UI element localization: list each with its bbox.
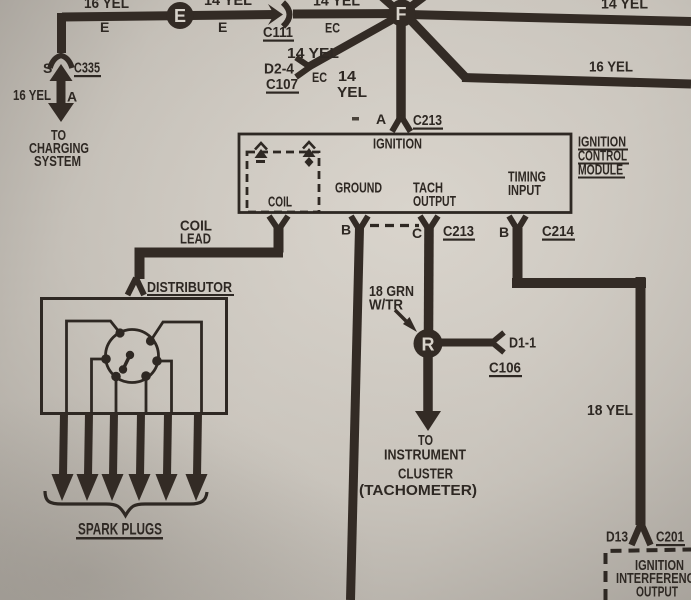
svg-text:INPUT: INPUT	[508, 182, 541, 199]
svg-text:EC: EC	[325, 20, 340, 36]
svg-text:C: C	[412, 225, 422, 241]
svg-text:EC: EC	[312, 69, 327, 85]
svg-text:D1-1: D1-1	[509, 336, 536, 352]
svg-text:LEAD: LEAD	[180, 231, 211, 248]
svg-text:E: E	[100, 19, 109, 35]
svg-text:DISTRIBUTOR: DISTRIBUTOR	[147, 279, 232, 296]
svg-text:14 YEL: 14 YEL	[313, 0, 360, 10]
svg-text:MODULE: MODULE	[578, 162, 623, 179]
svg-text:GROUND: GROUND	[335, 180, 382, 197]
svg-text:SPARK PLUGS: SPARK PLUGS	[78, 520, 162, 539]
svg-text:COIL: COIL	[268, 194, 292, 211]
svg-text:B: B	[341, 222, 351, 238]
svg-text:E: E	[174, 6, 186, 26]
svg-text:C107: C107	[266, 77, 298, 93]
svg-text:14 YEL: 14 YEL	[287, 45, 339, 62]
svg-text:C214: C214	[542, 224, 574, 240]
svg-text:YEL: YEL	[337, 85, 367, 101]
svg-text:S: S	[43, 60, 52, 76]
svg-text:OUTPUT: OUTPUT	[413, 193, 456, 210]
svg-text:16 YEL: 16 YEL	[13, 87, 51, 104]
svg-text:D13: D13	[606, 530, 628, 546]
svg-text:14: 14	[338, 69, 356, 85]
svg-text:16 YEL: 16 YEL	[84, 0, 129, 12]
svg-text:CLUSTER: CLUSTER	[398, 467, 453, 483]
svg-text:A: A	[67, 89, 77, 105]
svg-text:E: E	[218, 19, 227, 35]
svg-text:B: B	[499, 224, 509, 240]
svg-text:C201: C201	[656, 530, 684, 546]
svg-text:18 YEL: 18 YEL	[587, 402, 633, 419]
svg-text:(TACHOMETER): (TACHOMETER)	[359, 483, 477, 499]
svg-text:F: F	[396, 4, 407, 24]
svg-text:OUTPUT: OUTPUT	[636, 585, 678, 600]
svg-text:R: R	[422, 335, 435, 355]
svg-text:SYSTEM: SYSTEM	[34, 154, 81, 170]
svg-text:IGNITION: IGNITION	[373, 136, 422, 153]
svg-text:C213: C213	[413, 113, 442, 129]
svg-text:14 YEL: 14 YEL	[204, 0, 252, 9]
svg-text:C106: C106	[489, 361, 521, 377]
svg-text:C111: C111	[263, 25, 293, 41]
svg-text:14 YEL: 14 YEL	[601, 0, 648, 13]
svg-text:D2-4: D2-4	[264, 62, 294, 78]
svg-text:A: A	[376, 111, 386, 127]
svg-text:C213: C213	[443, 224, 474, 240]
svg-text:16 YEL: 16 YEL	[589, 59, 633, 76]
svg-text:C335: C335	[74, 61, 100, 77]
svg-text:INSTRUMENT: INSTRUMENT	[384, 448, 466, 464]
